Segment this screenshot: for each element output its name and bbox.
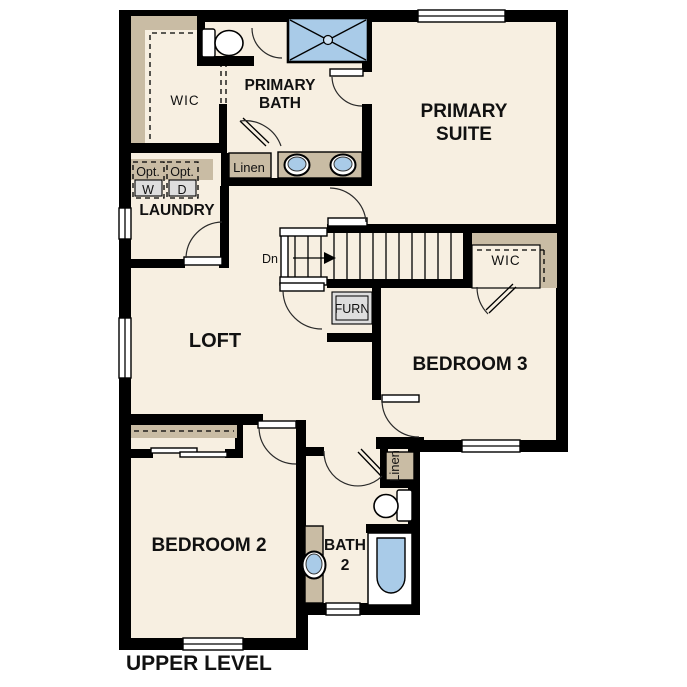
label-stairs-dn: Dn — [262, 252, 278, 266]
sink-left — [288, 157, 306, 171]
bath2-tub — [368, 533, 412, 605]
label-bath2-1: BATH — [324, 537, 366, 554]
furnace-door-leaf — [280, 283, 324, 291]
shower-drain-icon — [324, 36, 333, 45]
label-primary-suite-1: PRIMARY — [421, 101, 508, 122]
floorplan-canvas: WIC PRIMARY BATH PRIMARY SUITE Opt. W Op… — [0, 0, 687, 687]
label-primary-bath-2: BATH — [259, 95, 301, 112]
window-loft-left — [119, 318, 131, 378]
bedroom3-door-leaf — [382, 395, 419, 402]
label-bedroom3: BEDROOM 3 — [412, 354, 527, 375]
bath2-sink — [306, 554, 322, 574]
label-wic-bedroom3: WIC — [491, 253, 520, 268]
window-primary-suite-top — [418, 10, 505, 22]
bath2-vanity — [303, 526, 326, 603]
label-primary-bath-1: PRIMARY — [245, 77, 317, 94]
label-primary-suite-2: SUITE — [436, 124, 492, 145]
label-furnace: FURN — [335, 302, 370, 316]
shower — [288, 18, 368, 62]
window-laundry-left — [119, 208, 131, 239]
label-dryer: D — [177, 183, 186, 197]
stair-newel — [281, 229, 288, 284]
bypass-door-right — [180, 452, 227, 457]
label-bedroom2: BEDROOM 2 — [151, 535, 266, 556]
upper-level-floorplan: WIC PRIMARY BATH PRIMARY SUITE Opt. W Op… — [0, 0, 687, 687]
label-linen-primary: Linen — [233, 160, 265, 175]
label-loft: LOFT — [189, 330, 241, 352]
primary-vanity — [278, 152, 362, 178]
primary-bath-door-leaf — [330, 69, 363, 76]
bedroom2-door-leaf — [258, 421, 296, 428]
label-opt-dryer: Opt. — [170, 165, 194, 179]
label-bath2-2: 2 — [341, 557, 350, 574]
window-bath2-bottom — [326, 603, 360, 615]
stair-rail-top — [280, 228, 327, 236]
primary-suite-door-leaf — [328, 218, 367, 226]
window-bedroom2-bottom — [183, 638, 243, 650]
label-opt-washer: Opt. — [136, 165, 160, 179]
primary-toilet — [202, 29, 243, 57]
laundry-door-leaf — [184, 257, 222, 265]
label-washer: W — [142, 183, 154, 197]
window-bedroom3-bottom — [462, 440, 520, 452]
label-laundry: LAUNDRY — [139, 202, 215, 219]
plan-title: UPPER LEVEL — [126, 652, 272, 675]
sink-right — [334, 157, 352, 171]
label-wic-primary: WIC — [170, 93, 199, 108]
label-linen-hall: Linen — [387, 450, 402, 482]
